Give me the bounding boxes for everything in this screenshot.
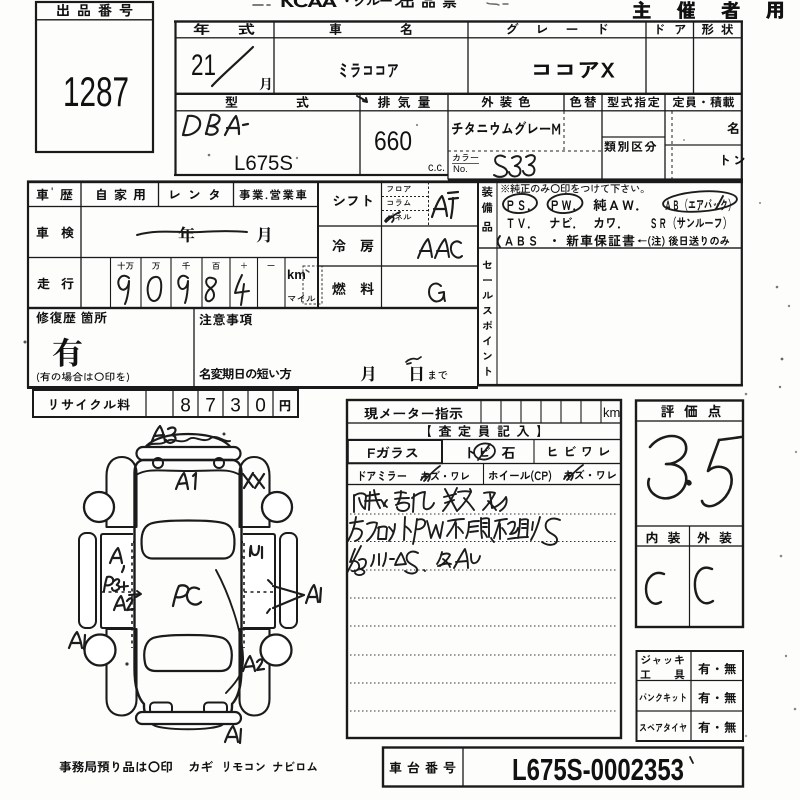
svg-text:L675S: L675S	[234, 152, 293, 175]
svg-text:No.: No.	[453, 164, 468, 175]
svg-text:L675S-0002353: L675S-0002353	[512, 752, 684, 787]
svg-text:0: 0	[255, 396, 266, 417]
svg-text:8: 8	[180, 396, 191, 417]
svg-text:21: 21	[191, 49, 216, 82]
svg-text:': '	[51, 185, 53, 199]
svg-text:3: 3	[230, 396, 241, 417]
svg-text:660: 660	[374, 126, 412, 156]
svg-text:7: 7	[205, 396, 216, 417]
svg-text:1287: 1287	[63, 68, 129, 115]
svg-text:km: km	[603, 405, 620, 420]
svg-text:c.c.: c.c.	[428, 160, 445, 174]
